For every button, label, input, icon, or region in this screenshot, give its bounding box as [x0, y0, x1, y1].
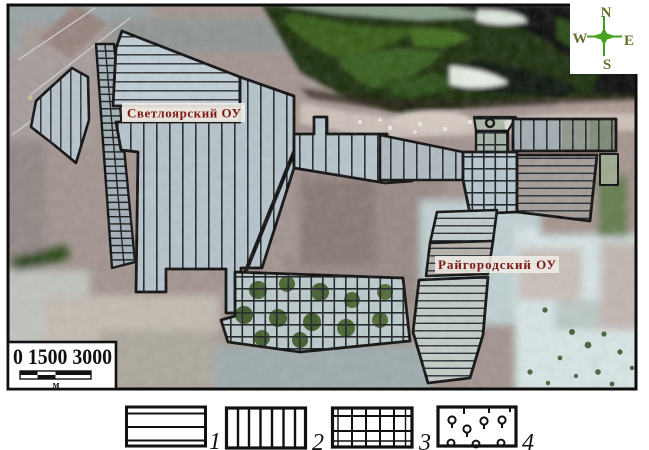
- svg-text:N: N: [601, 5, 612, 21]
- svg-text:E: E: [624, 33, 634, 49]
- svg-text:Райгородский ОУ: Райгородский ОУ: [438, 257, 556, 272]
- svg-text:м: м: [53, 380, 60, 391]
- svg-text:3: 3: [418, 430, 431, 450]
- svg-text:4: 4: [522, 430, 534, 450]
- svg-text:Светлоярский ОУ: Светлоярский ОУ: [127, 106, 241, 121]
- svg-text:1: 1: [209, 429, 221, 450]
- svg-text:0 1500 3000: 0 1500 3000: [13, 344, 112, 369]
- svg-text:2: 2: [312, 430, 324, 450]
- svg-text:S: S: [603, 57, 611, 73]
- svg-text:W: W: [573, 31, 588, 47]
